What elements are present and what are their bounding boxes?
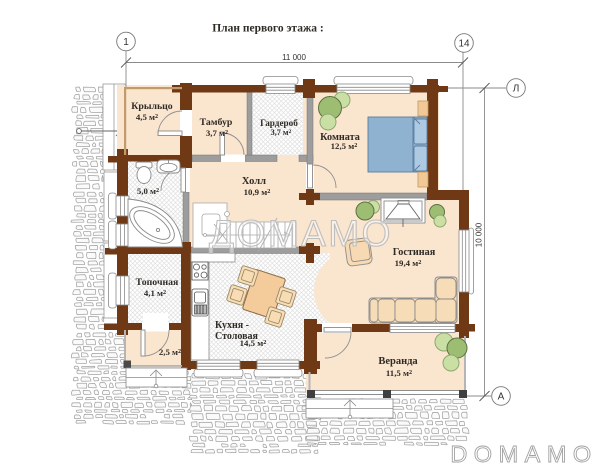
svg-text:14: 14 <box>458 39 470 50</box>
svg-text:Тамбур: Тамбур <box>200 117 233 128</box>
svg-text:Топочная: Топочная <box>136 277 179 288</box>
svg-text:10 000: 10 000 <box>475 222 484 247</box>
svg-text:DOMAMO: DOMAMO <box>450 441 597 467</box>
svg-text:11 000: 11 000 <box>282 53 306 62</box>
svg-text:1: 1 <box>123 37 129 48</box>
svg-text:4,1 м2: 4,1 м2 <box>144 288 166 298</box>
svg-text:Кухня -: Кухня - <box>215 320 249 331</box>
svg-text:11,5 м2: 11,5 м2 <box>386 368 412 378</box>
svg-text:ДОМАМО: ДОМАМО <box>209 213 393 254</box>
svg-text:14,5 м2: 14,5 м2 <box>240 338 267 348</box>
svg-text:3,7 м2: 3,7 м2 <box>206 128 228 138</box>
svg-text:Л: Л <box>513 84 520 95</box>
svg-text:Гардероб: Гардероб <box>260 118 298 128</box>
svg-text:Крыльцо: Крыльцо <box>131 101 173 112</box>
svg-text:План первого этажа :: План первого этажа : <box>212 23 324 35</box>
svg-text:Гостиная: Гостиная <box>393 247 436 258</box>
svg-text:А: А <box>498 392 505 403</box>
svg-text:10,9 м2: 10,9 м2 <box>244 187 271 197</box>
svg-text:3,7 м2: 3,7 м2 <box>271 128 292 137</box>
svg-text:Холл: Холл <box>242 176 266 187</box>
svg-text:4,5 м2: 4,5 м2 <box>136 112 158 122</box>
svg-text:5,0 м2: 5,0 м2 <box>137 186 159 196</box>
svg-text:Веранда: Веранда <box>378 356 418 367</box>
svg-text:2,5 м2: 2,5 м2 <box>159 347 181 357</box>
svg-text:19,4 м2: 19,4 м2 <box>395 258 422 268</box>
svg-text:12,5 м2: 12,5 м2 <box>331 141 358 151</box>
